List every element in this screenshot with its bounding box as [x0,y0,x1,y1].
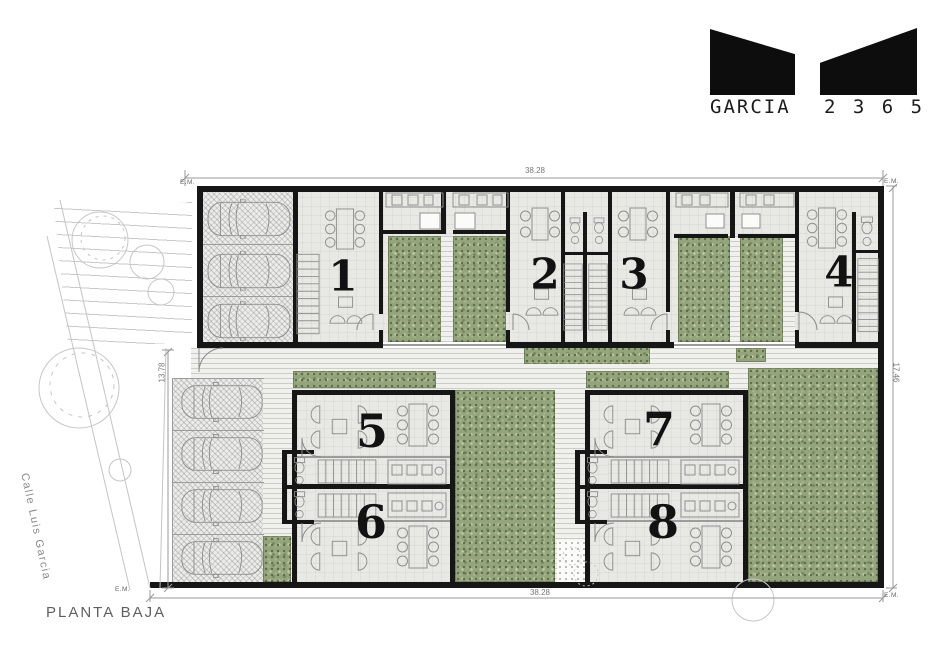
wall-segment [575,520,607,524]
wall-segment [506,342,674,348]
stall-line [172,378,264,379]
unit-label-7: 7 [643,402,675,456]
wall-segment [878,186,884,588]
courtyard-a-left [388,236,441,342]
floor-plan-sheet: GARCIA 2 3 6 5 [0,0,948,670]
stall-line [203,296,293,297]
wall-segment [197,342,383,348]
dimension-top: 38.28 [500,166,570,175]
courtyard-b-side-path [783,236,795,342]
planter-center [524,346,650,364]
stall-line [172,482,264,483]
unit-label-1: 1 [328,252,357,301]
logo-numbers: 2 3 6 5 [824,96,925,118]
wall-segment [795,192,799,312]
em-mark: E.M. [180,179,195,186]
wall-segment [292,484,455,489]
stall-line [172,534,264,535]
wall-segment [383,344,506,346]
courtyard-a-path [441,236,453,342]
wall-segment [674,344,795,346]
wall-segment [506,330,510,345]
wall-segment [585,390,748,395]
gravel-path [557,540,585,582]
unit-label-2: 2 [530,250,559,299]
stall-line [172,378,173,582]
street-hatch [54,202,192,344]
unit-label-4: 4 [824,248,853,297]
unit-label-6: 6 [355,495,387,549]
dimension-bottom: 38.28 [505,588,575,597]
wall-segment [666,192,670,312]
wall-segment [441,192,446,234]
stall-line [172,430,264,431]
logo-name: GARCIA [710,96,791,118]
wall-segment [506,192,510,312]
em-mark: E.M. [884,592,899,599]
courtyard-c [455,390,555,582]
courtyard-a-right [453,236,506,342]
wall-segment [795,330,799,344]
wall-segment [282,450,314,454]
courtyard-d [748,368,878,582]
wall-segment [561,192,565,345]
wall-segment [590,456,743,458]
wall-segment [282,520,314,524]
dimension-right: 17.46 [892,351,901,395]
wall-segment [575,485,607,489]
em-mark: E.M. [884,178,899,185]
wall-segment [453,230,508,234]
stall-line [203,244,293,245]
parking-bottom [173,378,263,582]
street-name-label: Calle Luis Garcia [18,472,61,621]
parking-planter [263,536,291,582]
wall-segment [379,192,383,314]
unit-label-8: 8 [647,495,679,549]
planter-right [736,348,766,362]
wall-segment [795,342,884,348]
courtyard-b-left [678,236,730,342]
planter-block78 [586,371,729,388]
wall-segment [197,186,203,347]
wall-segment [674,234,728,238]
wall-segment [738,234,795,238]
wall-segment [293,192,298,345]
logo-trapezoid-left [710,29,795,95]
em-mark: E.M. [115,586,130,593]
courtyard-b-path [730,236,740,342]
wall-segment [292,390,455,395]
wall-segment [282,485,314,489]
unit-label-5: 5 [356,404,388,458]
wall-segment [561,252,612,255]
unit-label-3: 3 [619,250,648,299]
garage-top [203,192,293,342]
wall-segment [585,484,748,489]
planter-block56 [293,371,436,388]
wall-segment [575,450,607,454]
wall-segment [608,192,612,345]
courtyard-b-right [740,236,783,342]
wall-segment [730,192,735,238]
wall-segment [852,250,884,253]
wall-segment [383,230,441,234]
wall-segment [666,330,670,345]
wall-segment [583,212,587,345]
page-title: PLANTA BAJA [46,604,166,621]
dimension-left: 13.78 [158,351,167,395]
wall-segment [197,186,884,192]
logo-trapezoid-right [820,28,917,95]
